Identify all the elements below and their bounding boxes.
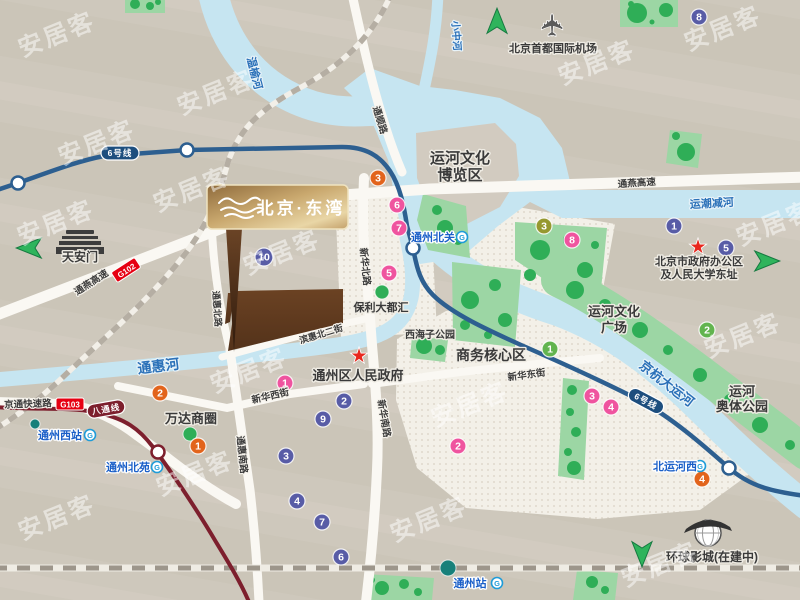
numbered-marker-label: 2 [157, 388, 163, 400]
numbered-marker-label: 6 [338, 552, 344, 564]
numbered-marker-label: 1 [195, 441, 201, 453]
metro-logo-letter: G [459, 233, 465, 242]
map-canvas: 6号线6号线八通线 G102G103 815102934766758134232… [0, 0, 800, 600]
numbered-marker-label: 8 [569, 235, 575, 247]
poi-label: 保利大都汇 [353, 300, 409, 314]
tongzhou-west-dot [30, 419, 40, 429]
metro-logo-letter: G [697, 462, 703, 471]
numbered-marker-label: 4 [294, 496, 300, 508]
numbered-marker-label: 5 [723, 243, 729, 255]
svg-text:G103: G103 [60, 401, 80, 410]
numbered-marker-label: 3 [589, 391, 595, 403]
station-label: 通州北关 [411, 230, 455, 244]
area-label: 运河文化 [430, 149, 490, 167]
station-label: 通州西站 [38, 428, 82, 442]
station-label: 通州站 [454, 576, 487, 590]
area-label: 运河文化 [588, 304, 640, 319]
area-label: 西海子公园 [405, 328, 455, 341]
numbered-marker-label: 2 [455, 441, 461, 453]
numbered-marker-label: 7 [319, 517, 325, 529]
numbered-marker-label: 5 [386, 268, 392, 280]
numbered-marker-label: 3 [541, 221, 547, 233]
numbered-marker-label: 4 [608, 402, 614, 414]
numbered-marker-label: 4 [699, 474, 705, 486]
area-label: 广场 [601, 320, 627, 335]
government-star-marker: ★ [350, 346, 367, 367]
government-star-marker: ★ [689, 237, 706, 258]
numbered-marker-label: 3 [283, 451, 289, 463]
numbered-marker-label: 2 [341, 396, 347, 408]
road-label: 京通快速路 [4, 397, 52, 411]
numbered-marker-label: 9 [320, 414, 326, 426]
numbered-marker-label: 7 [396, 223, 402, 235]
area-label: 奥体公园 [716, 399, 768, 414]
poly-plaza-dot [375, 285, 389, 299]
metro-logo-letter: G [154, 463, 160, 472]
area-label: 博览区 [437, 166, 482, 184]
numbered-marker-label: 1 [547, 344, 553, 356]
metro-logo-letter: G [494, 579, 500, 588]
station-label: 北运河西 [653, 459, 697, 473]
highway-shield: G103 [56, 398, 84, 410]
poi-label: 北京市政府办公区 [655, 254, 743, 268]
tongzhou-station-dot [440, 560, 456, 576]
metro-logo-letter: G [87, 431, 93, 440]
area-label: 运河 [729, 384, 755, 399]
numbered-marker-label: 1 [671, 221, 677, 233]
station-label: 通州北苑 [106, 460, 150, 474]
poi-label: 及人民大学东址 [661, 267, 738, 281]
numbered-marker-label: 3 [375, 173, 381, 185]
numbered-marker-label: 8 [696, 12, 702, 24]
poi-label: 万达商圈 [164, 411, 217, 426]
property-location-map: 6号线6号线八通线 G102G103 815102934766758134232… [0, 0, 800, 600]
area-label: 商务核心区 [456, 347, 526, 363]
poi-label: 天安门 [62, 249, 98, 264]
brand-sign-title: 北京·东湾 [257, 198, 346, 218]
numbered-marker-label: 6 [394, 200, 400, 212]
airport-icon: ✈ [537, 12, 570, 37]
poi-label: 通州区人民政府 [312, 368, 403, 383]
